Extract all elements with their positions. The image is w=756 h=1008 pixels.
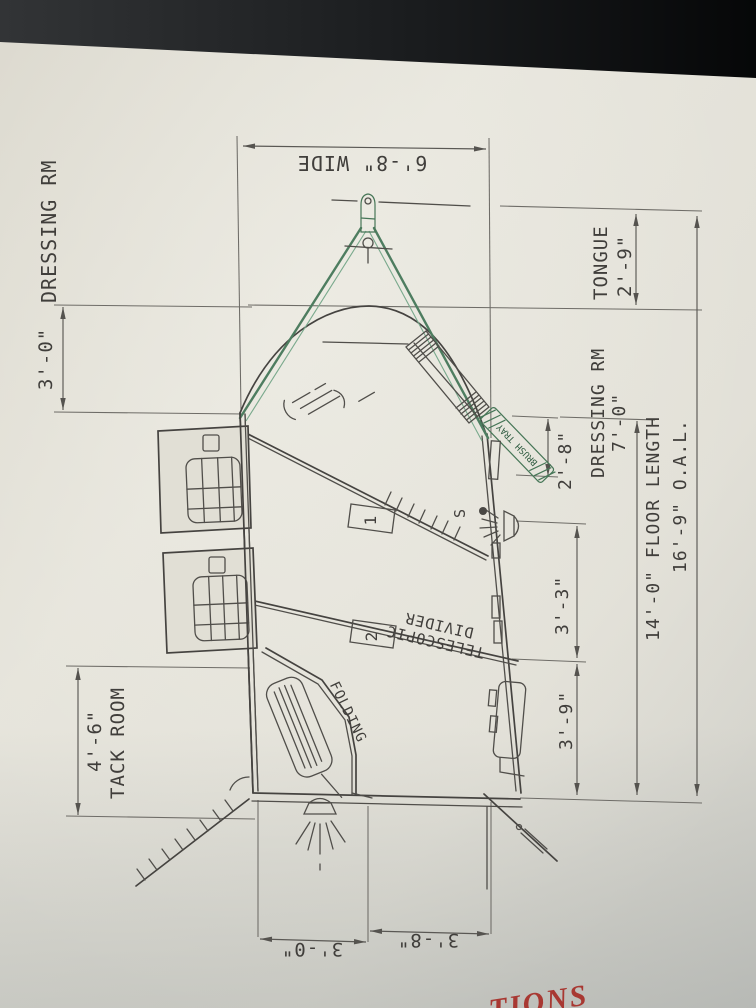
tongue-label: TONGUE — [590, 225, 612, 300]
dressing-rm-length-label: 7'-0" — [609, 393, 630, 452]
floor-length-label: 14'-0" FLOOR LENGTH — [643, 416, 664, 641]
stall-1-number: 1 — [361, 515, 380, 526]
dim-dressing-front-label: 3'-0" — [35, 328, 57, 390]
tongue-length-label: 2'-9" — [614, 235, 636, 297]
feed-door-window-2 — [163, 548, 257, 653]
overall-length-label: 16'-9" O.A.L. — [670, 419, 691, 573]
feed-door-window-1 — [158, 426, 251, 533]
monitor-photo: 6'-8" WIDE DRESSING RM 3'-0" TONGUE 2'-9… — [0, 0, 756, 1008]
tack-room-label: TACK ROOM — [107, 687, 129, 799]
nose-depth-label: 2'-8" — [555, 431, 576, 490]
tack-room-length-label: 4'-6" — [84, 710, 106, 772]
switch-dot — [479, 507, 487, 515]
rear-left-width-label: 3'-0" — [281, 938, 343, 960]
dressing-rm-side-label: DRESSING RM — [37, 160, 61, 303]
rear-right-width-label: 3'-8" — [397, 929, 459, 951]
stall-1-width-label: 3'-3" — [552, 576, 573, 635]
trailer-floor-plan-drawing: 6'-8" WIDE DRESSING RM 3'-0" TONGUE 2'-9… — [0, 0, 756, 1008]
light-switch-label: S — [451, 508, 469, 518]
stall-2-width-label: 3'-9" — [556, 691, 577, 750]
stall-2-number: 2 — [362, 631, 381, 642]
dressing-rm-label: DRESSING RM — [588, 348, 609, 478]
dim-width-label: 6'-8" WIDE — [297, 151, 427, 175]
